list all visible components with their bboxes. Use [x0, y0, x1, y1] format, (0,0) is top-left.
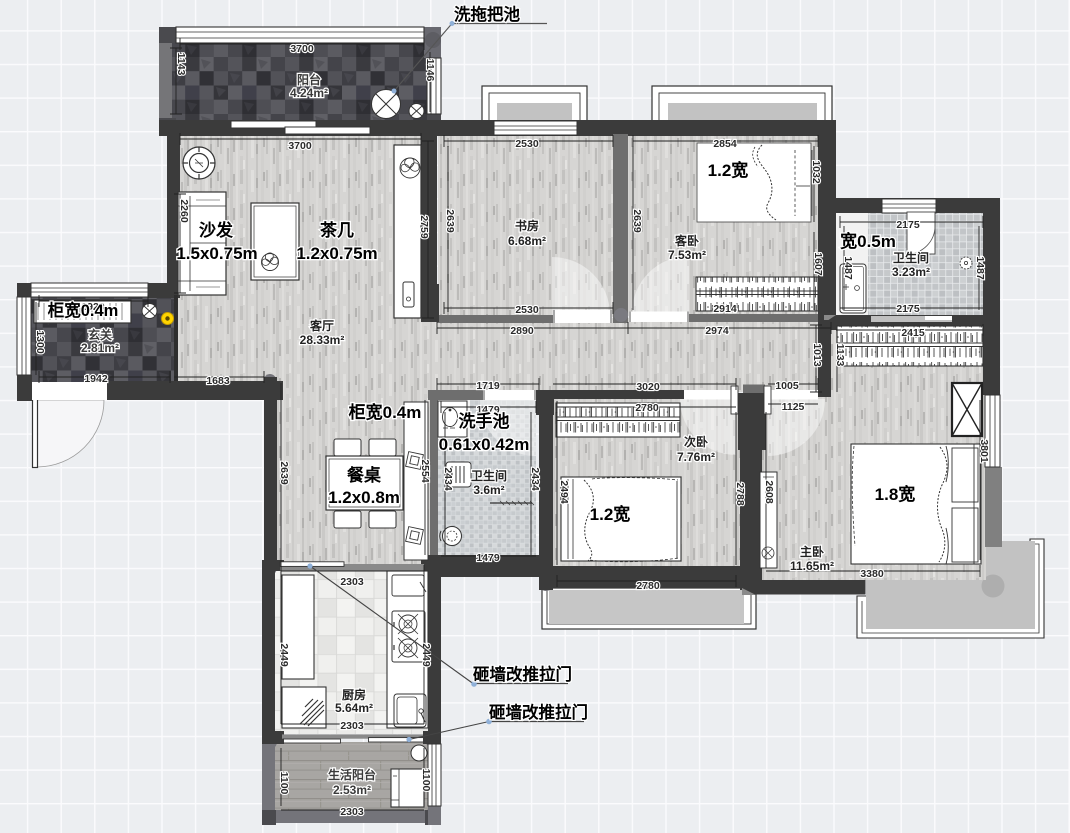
svg-text:1.2x0.75m: 1.2x0.75m	[296, 244, 377, 263]
svg-text:2780: 2780	[635, 402, 659, 414]
svg-text:1100: 1100	[420, 769, 432, 792]
svg-text:2639: 2639	[631, 209, 643, 233]
svg-text:2303: 2303	[340, 720, 364, 732]
svg-text:卫生间: 卫生间	[471, 468, 507, 483]
svg-text:2434: 2434	[442, 467, 454, 491]
svg-text:柜宽0.4m: 柜宽0.4m	[349, 402, 422, 422]
svg-text:2.53m²: 2.53m²	[333, 783, 371, 797]
svg-text:厨房: 厨房	[342, 687, 366, 702]
svg-text:1.5x0.75m: 1.5x0.75m	[176, 244, 257, 263]
svg-text:1005: 1005	[775, 380, 799, 392]
svg-text:1300: 1300	[34, 330, 46, 354]
svg-text:5.64m²: 5.64m²	[335, 701, 373, 715]
svg-text:2260: 2260	[178, 199, 190, 223]
svg-text:1487: 1487	[842, 256, 854, 280]
svg-text:茶几: 茶几	[320, 220, 354, 240]
svg-text:4.24m²: 4.24m²	[290, 86, 328, 100]
svg-text:2530: 2530	[515, 138, 539, 150]
svg-text:1.8宽: 1.8宽	[875, 484, 916, 504]
svg-text:1013: 1013	[811, 343, 823, 367]
svg-text:生活阳台: 生活阳台	[328, 767, 376, 782]
svg-text:1100: 1100	[278, 772, 290, 795]
svg-text:卫生间: 卫生间	[893, 250, 929, 265]
svg-text:1487: 1487	[974, 256, 986, 280]
svg-text:2608: 2608	[763, 480, 775, 504]
svg-text:餐桌: 餐桌	[347, 465, 382, 485]
svg-text:客卧: 客卧	[674, 233, 699, 248]
svg-text:2494: 2494	[558, 480, 570, 504]
svg-text:1146: 1146	[424, 59, 436, 82]
svg-text:2303: 2303	[340, 806, 364, 818]
svg-text:28.33m²: 28.33m²	[300, 333, 345, 347]
svg-text:2303: 2303	[340, 576, 364, 588]
svg-text:次卧: 次卧	[684, 434, 708, 449]
svg-text:3801: 3801	[978, 439, 990, 463]
svg-text:1125: 1125	[782, 401, 805, 413]
svg-text:2639: 2639	[444, 209, 456, 233]
svg-text:1032: 1032	[810, 160, 822, 184]
svg-text:2780: 2780	[636, 580, 660, 592]
svg-text:3020: 3020	[636, 381, 660, 393]
svg-text:书房: 书房	[515, 218, 539, 233]
svg-text:0.61x0.42m: 0.61x0.42m	[439, 435, 530, 454]
svg-text:3380: 3380	[860, 568, 884, 580]
svg-text:1.2x0.8m: 1.2x0.8m	[328, 488, 400, 507]
svg-text:沙发: 沙发	[199, 220, 234, 240]
svg-text:2639: 2639	[278, 461, 290, 485]
svg-text:1479: 1479	[476, 552, 500, 564]
svg-text:1719: 1719	[476, 380, 500, 392]
svg-text:7.53m²: 7.53m²	[668, 248, 706, 262]
svg-text:玄关: 玄关	[88, 327, 112, 342]
svg-text:2554: 2554	[419, 459, 431, 483]
svg-text:2854: 2854	[713, 138, 737, 150]
svg-text:1143: 1143	[175, 53, 187, 76]
svg-text:洗拖把池: 洗拖把池	[454, 4, 521, 24]
svg-text:2974: 2974	[705, 325, 729, 337]
svg-text:3700: 3700	[288, 140, 312, 152]
svg-text:2530: 2530	[515, 304, 539, 316]
svg-text:洗手池: 洗手池	[459, 411, 510, 431]
svg-text:7.76m²: 7.76m²	[677, 450, 715, 464]
svg-text:宽0.5m: 宽0.5m	[840, 231, 896, 251]
svg-text:1.2宽: 1.2宽	[708, 160, 749, 180]
svg-text:2415: 2415	[901, 327, 925, 339]
svg-text:3.23m²: 3.23m²	[892, 265, 930, 279]
svg-text:3700: 3700	[290, 43, 314, 55]
svg-text:1607: 1607	[812, 252, 824, 276]
svg-text:2434: 2434	[529, 467, 541, 491]
svg-text:2449: 2449	[278, 643, 290, 667]
svg-text:6.68m²: 6.68m²	[508, 234, 546, 248]
svg-text:砸墙改推拉门: 砸墙改推拉门	[473, 664, 572, 684]
svg-text:1683: 1683	[206, 375, 230, 387]
svg-text:客厅: 客厅	[309, 318, 334, 333]
svg-text:1942: 1942	[84, 373, 108, 385]
svg-text:2914: 2914	[713, 303, 737, 315]
svg-text:2175: 2175	[896, 219, 920, 231]
svg-text:2890: 2890	[510, 325, 534, 337]
svg-text:1133: 1133	[834, 344, 846, 367]
svg-text:砸墙改推拉门: 砸墙改推拉门	[489, 702, 588, 722]
svg-text:主卧: 主卧	[800, 544, 824, 559]
svg-text:2759: 2759	[418, 215, 430, 239]
svg-text:柜宽0.4m: 柜宽0.4m	[48, 300, 119, 320]
svg-text:2.81m²: 2.81m²	[81, 341, 119, 355]
svg-text:3.6m²: 3.6m²	[473, 483, 504, 497]
svg-text:2788: 2788	[734, 482, 746, 506]
svg-text:1.2宽: 1.2宽	[590, 504, 631, 524]
svg-text:2175: 2175	[896, 303, 920, 315]
svg-text:阳台: 阳台	[297, 72, 321, 87]
svg-text:11.65m²: 11.65m²	[790, 559, 834, 573]
